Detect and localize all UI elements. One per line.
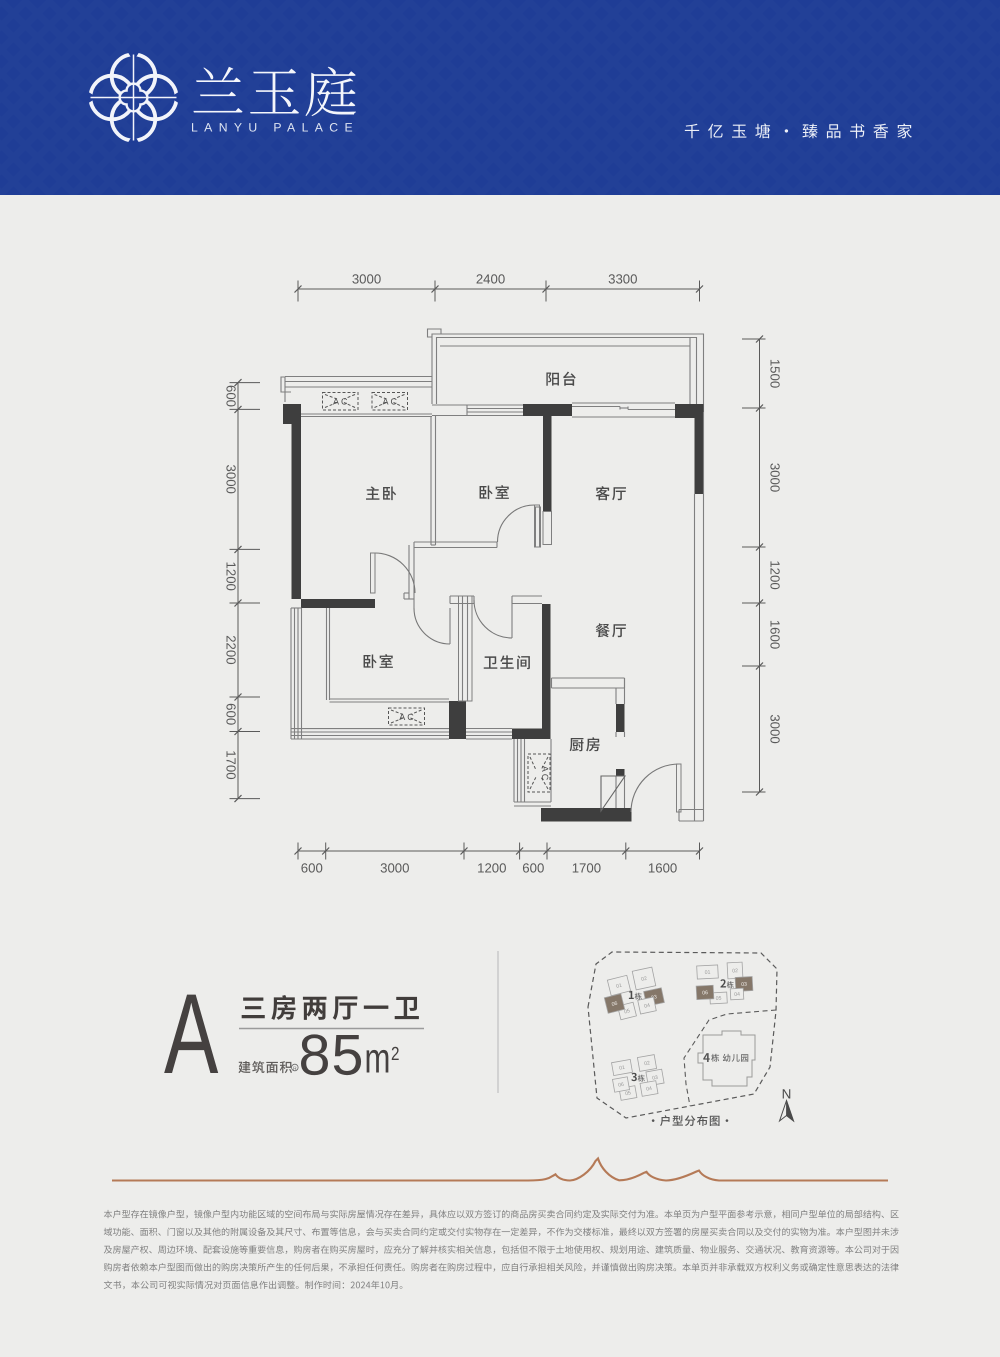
svg-text:2: 2 <box>391 1044 399 1065</box>
svg-text:A C: A C <box>383 397 398 407</box>
svg-text:05: 05 <box>625 1090 632 1097</box>
svg-text:3000: 3000 <box>380 861 409 876</box>
svg-text:3000: 3000 <box>224 465 239 494</box>
svg-text:1200: 1200 <box>477 861 506 876</box>
svg-text:02: 02 <box>644 1060 651 1067</box>
svg-text:A C: A C <box>333 397 348 407</box>
svg-text:06: 06 <box>618 1082 625 1089</box>
svg-text:01: 01 <box>704 970 710 976</box>
svg-text:600: 600 <box>224 703 239 725</box>
svg-text:3300: 3300 <box>608 272 637 287</box>
svg-text:05: 05 <box>715 996 721 1002</box>
svg-text:LANYU PALACE: LANYU PALACE <box>191 121 359 135</box>
svg-text:02: 02 <box>732 968 738 974</box>
svg-text:03: 03 <box>741 982 747 988</box>
svg-text:1600: 1600 <box>768 620 783 649</box>
svg-text:1200: 1200 <box>768 560 783 589</box>
svg-text:600: 600 <box>301 861 323 876</box>
svg-text:A: A <box>164 971 218 1098</box>
svg-text:m: m <box>365 1035 391 1082</box>
svg-text:A C: A C <box>399 712 414 722</box>
svg-text:1200: 1200 <box>224 562 239 591</box>
svg-text:600: 600 <box>224 385 239 407</box>
svg-text:R: R <box>293 1066 297 1072</box>
svg-text:3000: 3000 <box>352 272 381 287</box>
svg-text:04: 04 <box>646 1086 653 1093</box>
svg-text:1700: 1700 <box>572 861 601 876</box>
svg-text:1600: 1600 <box>648 861 677 876</box>
svg-text:1700: 1700 <box>224 750 239 779</box>
svg-text:3000: 3000 <box>768 463 783 492</box>
svg-text:01: 01 <box>619 1065 626 1072</box>
svg-text:1500: 1500 <box>768 359 783 388</box>
svg-text:04: 04 <box>734 992 740 998</box>
svg-text:2200: 2200 <box>224 635 239 664</box>
svg-text:600: 600 <box>522 861 544 876</box>
svg-text:06: 06 <box>702 990 708 996</box>
svg-text:85: 85 <box>299 1024 365 1088</box>
svg-text:2400: 2400 <box>476 272 505 287</box>
svg-text:3000: 3000 <box>768 714 783 743</box>
svg-text:A C: A C <box>540 766 550 781</box>
